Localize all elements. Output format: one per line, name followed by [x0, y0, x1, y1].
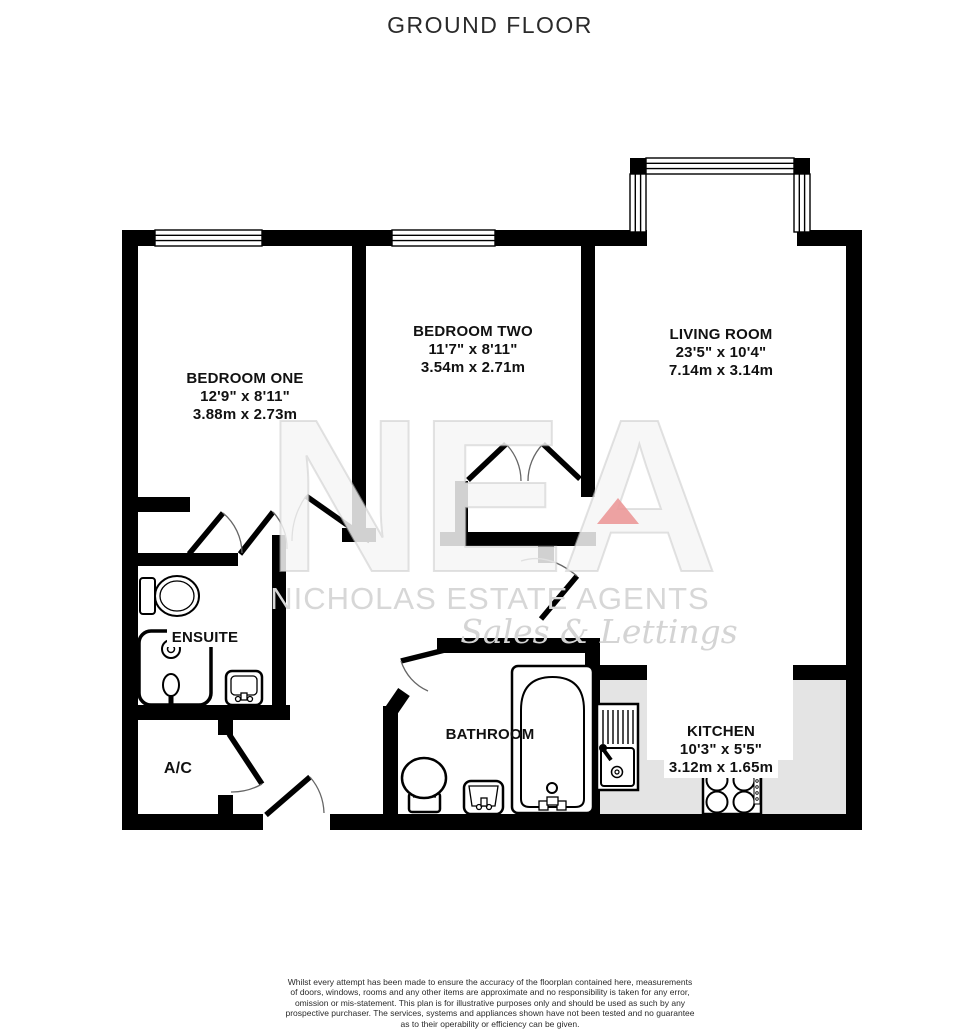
room-name: A/C — [138, 760, 218, 778]
room-dims-ft: 10'3" x 5'5" — [669, 741, 773, 759]
bathroom-toilet-icon — [402, 758, 446, 812]
windows — [155, 158, 810, 246]
disclaimer: Whilst every attempt has been made to en… — [0, 977, 980, 1031]
room-dims-ft: 12'9" x 8'11" — [149, 388, 341, 406]
room-label-kitchen: KITCHEN 10'3" x 5'5" 3.12m x 1.65m — [630, 722, 812, 778]
disclaimer-line: omission or mis-statement. This plan is … — [0, 998, 980, 1008]
room-dims-m: 3.54m x 2.71m — [378, 359, 568, 377]
floorplan-drawing — [0, 0, 980, 1031]
room-name: BEDROOM ONE — [149, 370, 341, 388]
room-name: BATHROOM — [400, 726, 580, 744]
ensuite-toilet-icon — [140, 576, 199, 616]
room-label-bedroom-one: BEDROOM ONE 12'9" x 8'11" 3.88m x 2.73m — [149, 370, 341, 424]
disclaimer-line: as to their operability or efficiency ca… — [0, 1019, 980, 1029]
disclaimer-line: prospective purchaser. The services, sys… — [0, 1008, 980, 1018]
room-label-ensuite: ENSUITE — [145, 629, 265, 647]
disclaimer-line: Whilst every attempt has been made to en… — [0, 977, 980, 987]
room-label-bedroom-two: BEDROOM TWO 11'7" x 8'11" 3.54m x 2.71m — [378, 323, 568, 377]
bathroom-angled-wall — [391, 692, 404, 711]
bathroom-sink-icon — [464, 781, 503, 814]
room-name: LIVING ROOM — [626, 326, 816, 344]
room-name: BEDROOM TWO — [378, 323, 568, 341]
room-dims-ft: 23'5" x 10'4" — [626, 344, 816, 362]
room-dims-ft: 11'7" x 8'11" — [378, 341, 568, 359]
ensuite-sink-icon — [226, 671, 262, 705]
room-name: KITCHEN — [669, 723, 773, 741]
room-dims-m: 3.12m x 1.65m — [669, 759, 773, 777]
disclaimer-line: of doors, windows, rooms and any other i… — [0, 987, 980, 997]
room-label-bathroom: BATHROOM — [400, 726, 580, 744]
room-dims-m: 7.14m x 3.14m — [626, 362, 816, 380]
room-label-living-room: LIVING ROOM 23'5" x 10'4" 7.14m x 3.14m — [626, 326, 816, 380]
room-label-ac: A/C — [138, 760, 218, 778]
room-dims-m: 3.88m x 2.73m — [149, 406, 341, 424]
room-name: ENSUITE — [167, 628, 243, 647]
floorplan-page: GROUND FLOOR — [0, 0, 980, 1031]
